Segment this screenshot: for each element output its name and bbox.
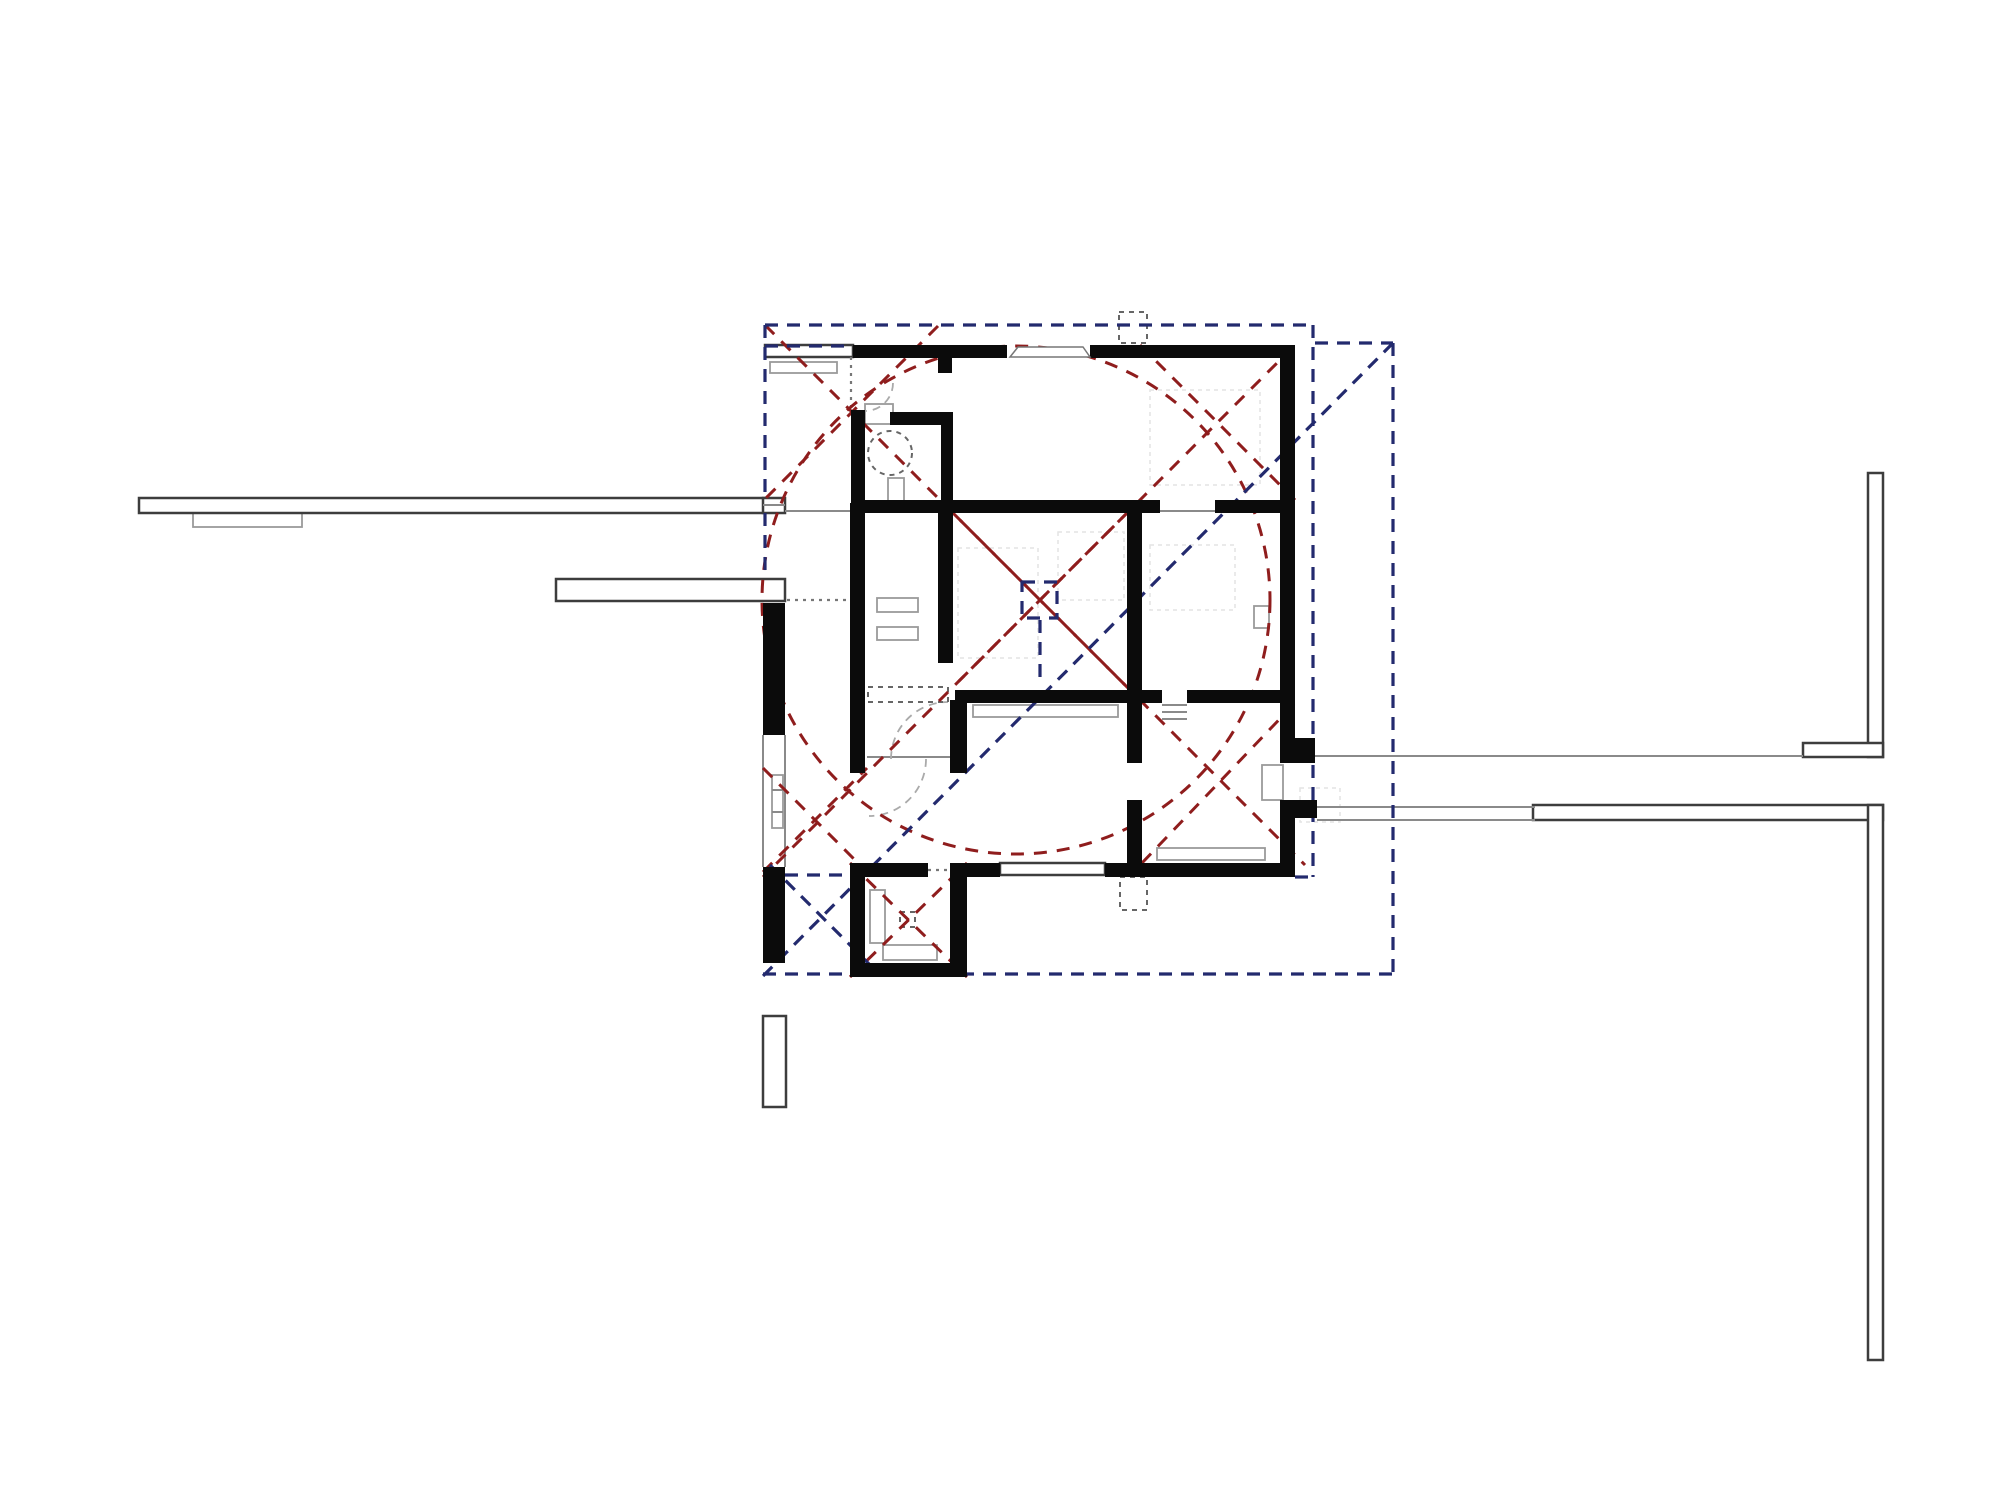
- walls-item: [853, 500, 1160, 513]
- walls-item: [1295, 800, 1317, 818]
- furniture-rects-item: [973, 705, 1118, 717]
- walls-item: [1127, 500, 1142, 690]
- walls-item: [938, 513, 953, 663]
- walls-item: [950, 700, 967, 773]
- faint-grid-rects-item: [1150, 390, 1260, 485]
- walls-item: [1127, 700, 1142, 763]
- entry-door-trapezoid: [1010, 347, 1090, 357]
- exterior-outlined-walls-item: [1868, 805, 1883, 1360]
- gray-dotted-lines: [787, 357, 950, 870]
- walls-item: [851, 410, 865, 503]
- furniture-rects-item: [1254, 606, 1269, 628]
- walls-item: [865, 863, 928, 877]
- walls: [763, 345, 1317, 977]
- gray-dashed-rects-item: [1119, 312, 1147, 343]
- walls-item: [938, 358, 952, 373]
- furniture-rects-item: [877, 627, 918, 640]
- furniture-rects-item: [883, 945, 937, 960]
- walls-item: [853, 345, 1007, 358]
- red-dashed-circle-item: [762, 346, 1270, 854]
- floor-plan-canvas: [0, 0, 2000, 1500]
- furniture-rects-item: [1262, 765, 1283, 800]
- exterior-outlined-walls-item: [1533, 805, 1883, 820]
- exterior-outlined-walls-item: [1803, 743, 1883, 757]
- faint-grid-rects-item: [1058, 532, 1124, 600]
- red-dashed-circle: [762, 346, 1270, 854]
- gray-dashed-rects: [868, 312, 1147, 927]
- walls-item: [850, 503, 865, 773]
- furniture-rects-item: [870, 890, 885, 943]
- floor-plan-page: [0, 0, 2000, 1500]
- walls-item: [1280, 345, 1295, 763]
- walls-item: [850, 863, 865, 977]
- door-swing-arcs-item: [869, 759, 926, 816]
- walls-item: [941, 412, 953, 503]
- walls-item: [1215, 500, 1280, 513]
- walls-item: [763, 867, 785, 963]
- faint-grid-rects-item: [1150, 545, 1235, 610]
- furniture-rects-item: [772, 775, 783, 828]
- gray-dashed-circles-item: [868, 431, 912, 475]
- furniture-rects-item: [888, 478, 904, 501]
- walls-item: [950, 863, 967, 977]
- exterior-outlined-walls-item: [763, 1016, 786, 1107]
- walls-item: [763, 603, 785, 735]
- door-swing-arcs-item: [891, 702, 948, 759]
- furniture-rects-item: [877, 598, 918, 612]
- walls-item: [1090, 345, 1295, 358]
- exterior-outlined-walls-item: [556, 579, 785, 601]
- walls-item: [1187, 690, 1280, 703]
- entry-door-trapezoid-item: [1010, 347, 1090, 357]
- red-dashed-lines: [763, 325, 1305, 977]
- furniture-rects-item: [193, 513, 302, 527]
- gray-dashed-rects-item: [868, 687, 948, 702]
- walls-item: [1293, 738, 1315, 763]
- exterior-outlined-walls-item: [139, 498, 765, 513]
- gray-dashed-circles: [868, 431, 912, 475]
- gray-dashed-rects-item: [1120, 877, 1147, 910]
- exterior-outlined-walls-item: [1868, 473, 1883, 757]
- walls-item: [1127, 800, 1142, 877]
- exterior-outlined-walls-item: [1000, 863, 1105, 875]
- walls-item: [850, 963, 967, 977]
- furniture-rects-item: [1157, 848, 1265, 860]
